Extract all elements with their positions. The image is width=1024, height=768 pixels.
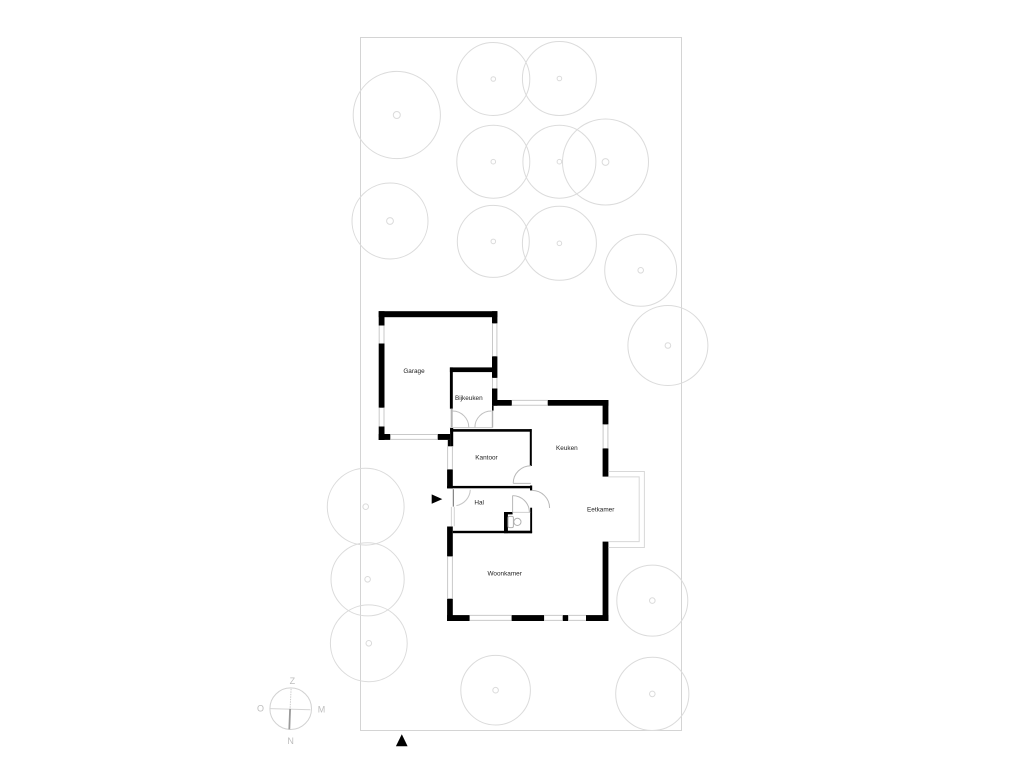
svg-text:O: O bbox=[257, 704, 264, 714]
svg-text:Bijkeuken: Bijkeuken bbox=[455, 395, 483, 402]
svg-text:Hal: Hal bbox=[474, 500, 484, 507]
svg-text:Eetkamer: Eetkamer bbox=[587, 506, 615, 513]
svg-text:Keuken: Keuken bbox=[556, 445, 578, 452]
svg-text:Garage: Garage bbox=[403, 368, 425, 375]
svg-text:Kantoor: Kantoor bbox=[475, 455, 498, 462]
svg-text:M: M bbox=[318, 705, 326, 715]
svg-text:N: N bbox=[287, 736, 294, 746]
svg-text:Z: Z bbox=[290, 676, 296, 686]
svg-text:Woonkamer: Woonkamer bbox=[488, 570, 523, 577]
